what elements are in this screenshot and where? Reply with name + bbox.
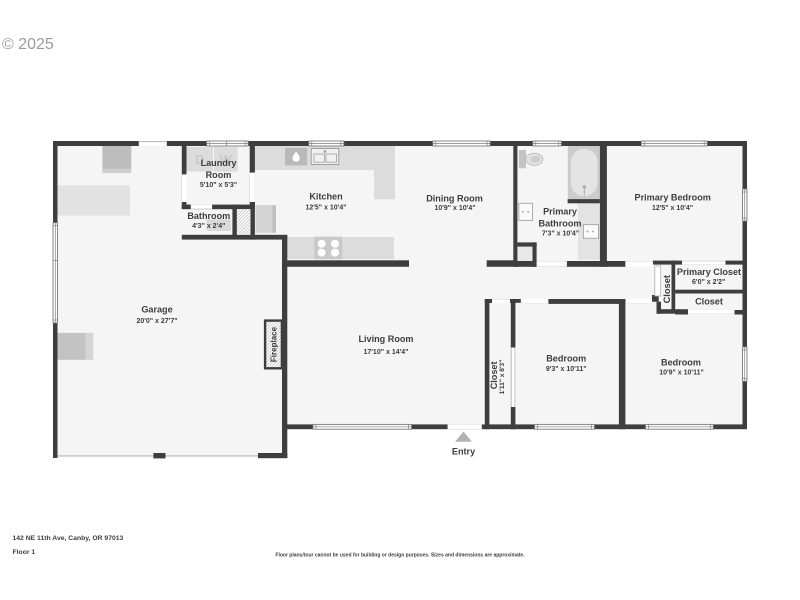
svg-text:Primary Closet: Primary Closet xyxy=(677,267,741,277)
svg-text:1'11" x 8'3": 1'11" x 8'3" xyxy=(499,360,506,395)
svg-text:Floor plans/tour cannot be use: Floor plans/tour cannot be used for buil… xyxy=(275,553,525,559)
svg-text:Floor 1: Floor 1 xyxy=(13,549,36,556)
svg-text:Bathroom: Bathroom xyxy=(187,211,230,221)
svg-text:4'3" x 2'4": 4'3" x 2'4" xyxy=(192,223,225,230)
svg-text:5'10" x 5'3": 5'10" x 5'3" xyxy=(200,182,237,189)
svg-text:142 NE 11th Ave, Canby, OR 970: 142 NE 11th Ave, Canby, OR 97013 xyxy=(13,535,124,542)
svg-text:Bedroom: Bedroom xyxy=(546,353,586,363)
svg-text:12'5" x 10'4": 12'5" x 10'4" xyxy=(305,205,346,212)
svg-text:Bathroom: Bathroom xyxy=(539,219,582,229)
svg-text:Bedroom: Bedroom xyxy=(661,357,701,367)
svg-text:Closet: Closet xyxy=(695,296,723,306)
svg-text:Dining Room: Dining Room xyxy=(426,193,483,203)
svg-text:12'5" x 10'4": 12'5" x 10'4" xyxy=(652,205,693,212)
svg-text:17'10" x 14'4": 17'10" x 14'4" xyxy=(363,349,408,356)
svg-text:Laundry: Laundry xyxy=(201,158,238,168)
svg-text:Garage: Garage xyxy=(141,304,172,314)
svg-text:Living Room: Living Room xyxy=(358,334,413,344)
svg-text:6'0" x 2'2": 6'0" x 2'2" xyxy=(692,279,725,286)
svg-text:9'3" x 10'11": 9'3" x 10'11" xyxy=(546,366,587,373)
svg-text:Fireplace: Fireplace xyxy=(269,326,278,362)
svg-text:10'9" x 10'11": 10'9" x 10'11" xyxy=(659,369,704,376)
svg-text:Primary: Primary xyxy=(543,207,578,217)
svg-text:© 2025: © 2025 xyxy=(2,36,54,53)
svg-text:Entry: Entry xyxy=(452,446,476,456)
svg-text:20'0" x 27'7": 20'0" x 27'7" xyxy=(136,318,177,325)
svg-text:Closet: Closet xyxy=(662,275,672,303)
svg-text:Closet: Closet xyxy=(489,362,499,390)
svg-text:7'3" x 10'4": 7'3" x 10'4" xyxy=(542,231,579,238)
svg-text:Room: Room xyxy=(206,170,232,180)
svg-text:Primary Bedroom: Primary Bedroom xyxy=(635,193,711,203)
svg-text:10'9" x 10'4": 10'9" x 10'4" xyxy=(434,205,475,212)
svg-text:Kitchen: Kitchen xyxy=(309,191,342,201)
